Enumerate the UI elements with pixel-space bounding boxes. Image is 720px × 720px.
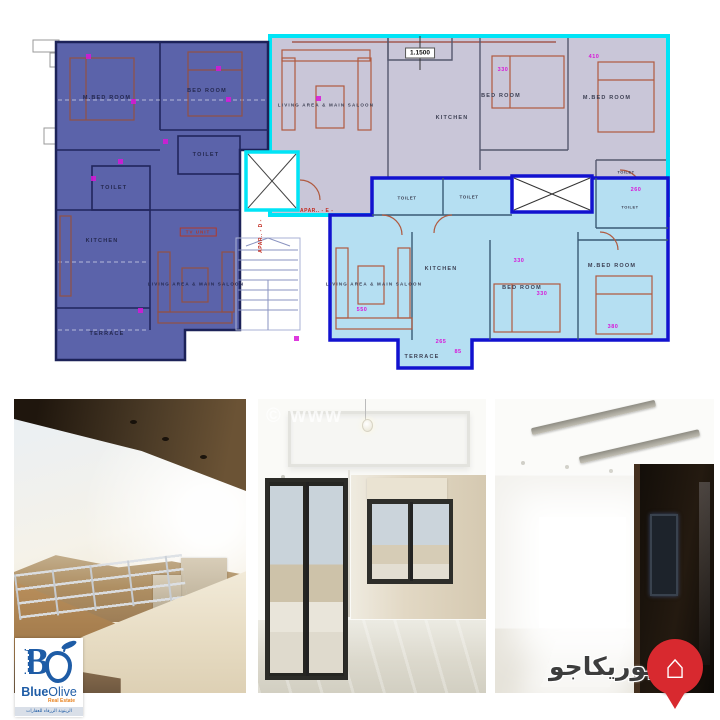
dim-blue-top: 330 <box>514 258 525 264</box>
plan-marker <box>118 159 123 164</box>
room-label-blue-terrace: TERRACE <box>405 354 440 360</box>
room-label-blue-toilet-b: TOILET <box>460 195 479 200</box>
dim-blue-bed: 330 <box>537 291 548 297</box>
blue-olive-name-second: Olive <box>48 685 76 699</box>
blue-olive-subtitle: Real Estate <box>15 698 83 705</box>
photo-living-room: © www <box>258 399 486 693</box>
plan-marker <box>163 139 168 144</box>
room-label-purple-toilet-b: TOILET <box>101 185 128 191</box>
olive-icon <box>45 651 72 683</box>
elevator-shaft-right <box>512 176 592 212</box>
blue-olive-logo: B BlueOlive Real Estate الزيتونة الزرقاء… <box>15 638 83 717</box>
pin-tail <box>663 689 687 709</box>
plan-marker <box>86 54 91 59</box>
room-label-blue-toilet-a: TOILET <box>398 196 417 201</box>
floor-plan: M.BED ROOM BED ROOM TOILET TOILET KITCHE… <box>0 0 720 385</box>
ceiling-light <box>130 420 137 424</box>
dim-lavender-mbed: 410 <box>589 54 600 60</box>
bulb-wire <box>365 399 366 421</box>
yurikago-wordmark: يوريكاجو <box>549 652 655 681</box>
yurikago-pin-logo: ⌂ <box>645 639 707 713</box>
dim-lavender-bed: 330 <box>498 67 509 73</box>
room-label-lavender-kitchen: KITCHEN <box>436 115 469 121</box>
room-label-purple-toilet-a: TOILET <box>193 152 220 158</box>
dimension-note: 1.1500 <box>405 48 435 59</box>
dim-blue-terrace-a: 265 <box>436 339 447 345</box>
door-mullion <box>306 482 309 676</box>
ceiling-light <box>200 455 207 459</box>
room-label-purple-mbed: M.BED ROOM <box>83 95 131 101</box>
blue-olive-name-first: Blue <box>21 685 48 699</box>
room-label-purple-tv-unit: TV UNIT <box>180 228 217 237</box>
elevator-shaft-left <box>246 152 298 210</box>
room-label-purple-kitchen: KITCHEN <box>86 238 119 244</box>
plan-marker <box>131 99 136 104</box>
plan-marker <box>216 66 221 71</box>
room-label-lavender-mbed: M.BED ROOM <box>583 95 631 101</box>
room-label-blue-living: LIVING AREA & MAIN SALOON <box>326 282 422 287</box>
listing-flyer: M.BED ROOM BED ROOM TOILET TOILET KITCHE… <box>0 0 720 720</box>
room-label-blue-kitchen: KITCHEN <box>425 266 458 272</box>
window-pane <box>413 504 449 579</box>
dim-blue-terrace-b: 85 <box>454 349 461 355</box>
door-pane <box>270 486 303 672</box>
blue-olive-monogram: B <box>15 641 83 685</box>
room-label-purple-bed: BED ROOM <box>187 88 227 94</box>
dim-blue-mbed: 380 <box>608 324 619 330</box>
window <box>367 499 453 584</box>
house-icon: ⌂ <box>647 647 703 687</box>
blue-olive-arabic-tagline: الزيتونة الزرقاء للعقارات <box>15 707 83 716</box>
dim-blue-living: 550 <box>357 307 368 313</box>
room-label-blue-mbed: M.BED ROOM <box>588 263 636 269</box>
apartment-e-label: APAR.. - E - <box>300 208 333 214</box>
window-pane <box>372 504 408 579</box>
room-label-blue-toilet-c: TOILET <box>621 205 638 210</box>
doorway-reflection <box>699 482 709 665</box>
room-label-lavender-living: LIVING AREA & MAIN SALOON <box>278 103 374 108</box>
blue-apartment-shape <box>330 178 668 368</box>
shutter-box <box>367 478 447 499</box>
apartment-d-label: APAR.. - D - <box>258 219 264 253</box>
sunlight-patch <box>539 517 627 629</box>
room-label-purple-living: LIVING AREA & MAIN SALOON <box>148 282 244 287</box>
wall-corner <box>348 470 350 617</box>
plan-marker <box>138 308 143 313</box>
window-mullion <box>410 502 413 581</box>
film-strip-dots <box>26 648 29 678</box>
door-pane <box>309 486 342 672</box>
room-label-purple-terrace: TERRACE <box>90 331 125 337</box>
plan-marker <box>226 97 231 102</box>
room-label-lavender-bed: BED ROOM <box>481 93 521 99</box>
sliding-glass-door <box>265 478 348 680</box>
blue-olive-name: BlueOlive <box>15 686 83 698</box>
plan-marker <box>294 336 299 341</box>
plan-marker <box>316 96 321 101</box>
plan-marker <box>91 176 96 181</box>
mirror-screen <box>650 514 678 596</box>
photo-watermark: © www <box>266 405 343 428</box>
room-label-lavender-toilet: TOILET <box>617 170 634 175</box>
bare-bulb <box>362 419 373 432</box>
dim-lavender-toilet: 260 <box>631 187 642 193</box>
